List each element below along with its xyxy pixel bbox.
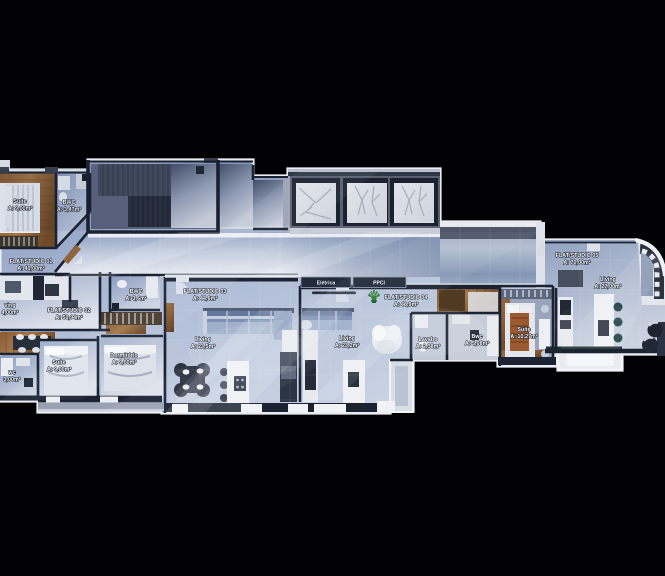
svg-text:A: 50,94m²: A: 50,94m² xyxy=(55,315,82,321)
svg-text:4,00m²: 4,00m² xyxy=(1,310,18,316)
svg-text:ving: ving xyxy=(4,303,15,309)
svg-text:Suíte: Suíte xyxy=(517,327,530,333)
svg-text:3,00m²: 3,00m² xyxy=(3,377,20,383)
svg-text:A: 10,27m²: A: 10,27m² xyxy=(510,334,537,340)
svg-text:A: 70,00m²: A: 70,00m² xyxy=(563,260,590,266)
svg-text:FLAT/STUDIO 02: FLAT/STUDIO 02 xyxy=(48,308,91,314)
svg-text:A: 40,00m²: A: 40,00m² xyxy=(17,266,44,272)
svg-text:FLAT/STUDIO 05: FLAT/STUDIO 05 xyxy=(556,253,599,259)
svg-text:wc: wc xyxy=(7,370,15,376)
svg-text:Living: Living xyxy=(600,277,616,283)
svg-text:FLAT/STUDIO 01: FLAT/STUDIO 01 xyxy=(10,259,53,265)
